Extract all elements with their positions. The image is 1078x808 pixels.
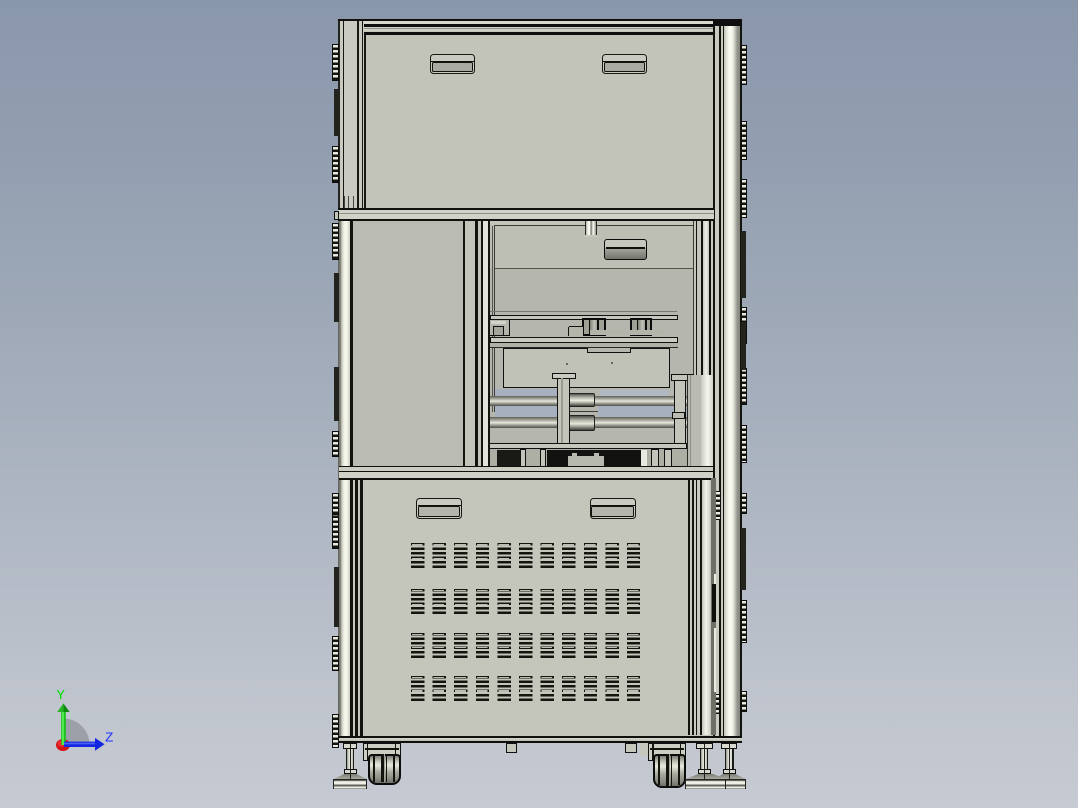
svg-text:Y: Y: [57, 688, 66, 704]
svg-text:Z: Z: [105, 731, 113, 747]
